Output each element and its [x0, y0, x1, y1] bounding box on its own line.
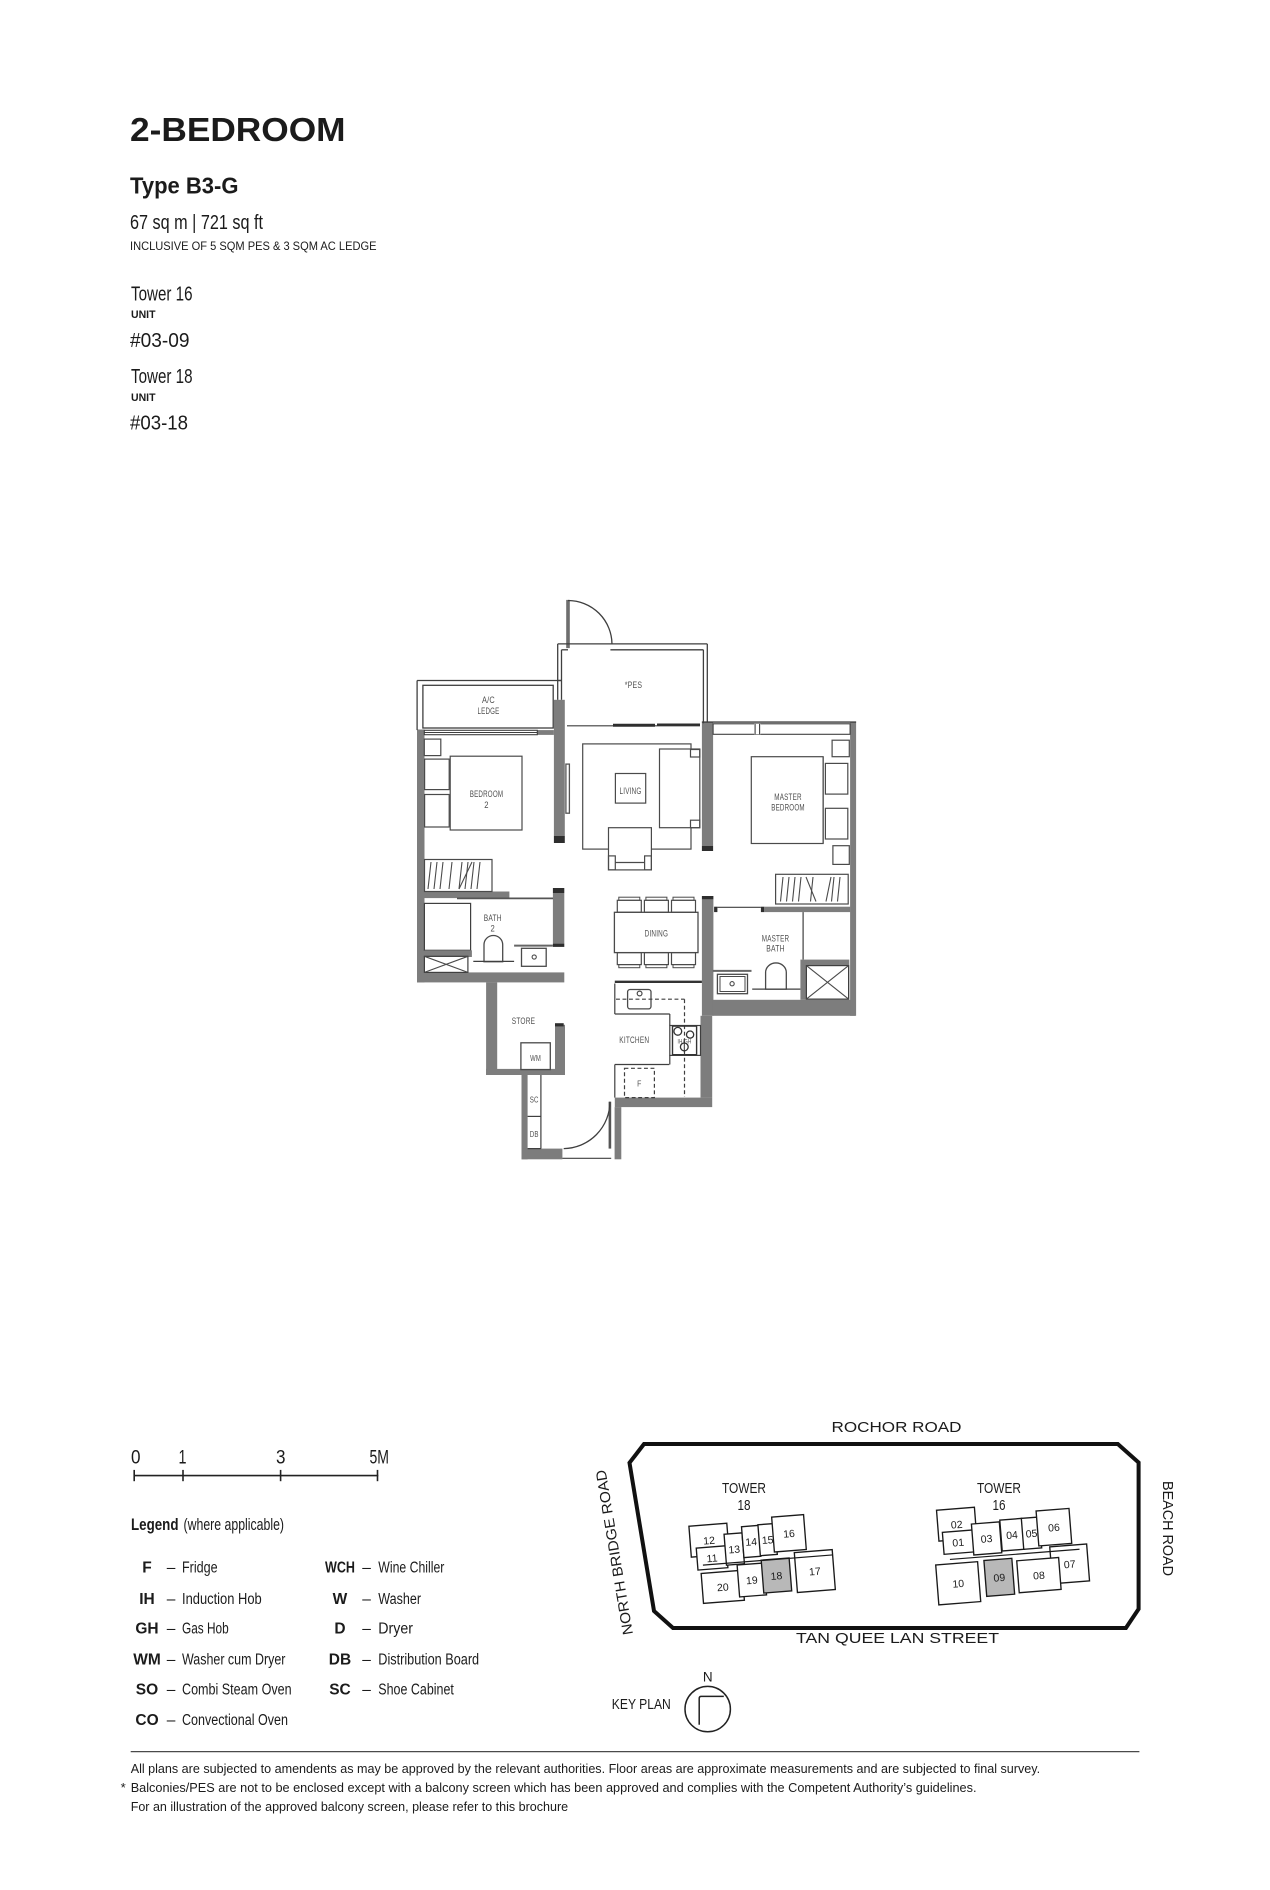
svg-text:BEDROOM: BEDROOM	[771, 803, 805, 814]
svg-text:04: 04	[1006, 1529, 1019, 1542]
svg-text:GH: GH	[135, 1621, 158, 1638]
svg-text:SC: SC	[329, 1682, 351, 1699]
svg-text:67 sq m | 721 sq ft: 67 sq m | 721 sq ft	[130, 212, 263, 234]
svg-text:–: –	[362, 1591, 371, 1608]
svg-text:WM: WM	[133, 1651, 161, 1668]
svg-text:Fridge: Fridge	[182, 1559, 218, 1576]
svg-text:5M: 5M	[370, 1447, 390, 1469]
svg-text:17: 17	[809, 1566, 822, 1579]
svg-text:BATH: BATH	[484, 913, 502, 924]
svg-text:12: 12	[703, 1535, 716, 1548]
svg-text:TOWER: TOWER	[722, 1481, 766, 1497]
svg-text:11: 11	[706, 1552, 718, 1565]
svg-text:UNIT: UNIT	[131, 309, 156, 321]
svg-text:Distribution Board: Distribution Board	[378, 1651, 479, 1668]
svg-text:13: 13	[728, 1544, 741, 1557]
svg-text:Legend: Legend	[131, 1515, 179, 1534]
svg-text:For an illustration of the app: For an illustration of the approved balc…	[131, 1799, 568, 1814]
svg-text:18: 18	[738, 1498, 751, 1514]
svg-text:–: –	[362, 1621, 371, 1638]
svg-text:Wine Chiller: Wine Chiller	[378, 1559, 444, 1576]
svg-text:01: 01	[952, 1537, 965, 1550]
svg-text:16: 16	[993, 1498, 1006, 1514]
svg-text:1: 1	[179, 1447, 187, 1469]
svg-text:15: 15	[761, 1534, 774, 1547]
svg-text:02: 02	[950, 1519, 963, 1532]
svg-text:06: 06	[1048, 1522, 1061, 1535]
svg-text:MASTER: MASTER	[774, 792, 802, 803]
svg-text:SC: SC	[530, 1096, 539, 1105]
svg-text:UNIT: UNIT	[131, 392, 156, 404]
svg-text:Shoe Cabinet: Shoe Cabinet	[378, 1682, 454, 1699]
svg-text:Gas Hob: Gas Hob	[182, 1621, 229, 1638]
svg-text:14: 14	[745, 1536, 758, 1549]
svg-text:F: F	[637, 1080, 642, 1089]
svg-text:09: 09	[993, 1572, 1006, 1585]
svg-text:2-BEDROOM: 2-BEDROOM	[130, 112, 346, 149]
svg-text:16: 16	[783, 1528, 796, 1541]
svg-text:IH: IH	[139, 1591, 155, 1608]
svg-text:WCH: WCH	[325, 1559, 355, 1576]
svg-text:N: N	[703, 1669, 713, 1684]
svg-text:–: –	[362, 1559, 371, 1576]
svg-text:Combi Steam Oven: Combi Steam Oven	[182, 1682, 292, 1699]
svg-text:DINING: DINING	[645, 929, 669, 940]
svg-text:LIVING: LIVING	[620, 786, 642, 797]
svg-text:03: 03	[980, 1533, 993, 1546]
svg-text:BATH: BATH	[766, 944, 785, 955]
svg-text:LEDGE: LEDGE	[478, 706, 500, 717]
svg-text:–: –	[362, 1651, 371, 1668]
svg-text:TOWER: TOWER	[977, 1481, 1021, 1497]
svg-text:A/C: A/C	[482, 695, 495, 706]
svg-text:#03-09: #03-09	[130, 329, 190, 352]
svg-text:DB: DB	[329, 1651, 351, 1668]
svg-text:Balconies/PES are not to be en: Balconies/PES are not to be enclosed exc…	[131, 1780, 977, 1795]
svg-text:All plans are subjected to ame: All plans are subjected to amendents as …	[131, 1761, 1040, 1776]
svg-text:DB: DB	[530, 1130, 539, 1139]
svg-text:10: 10	[952, 1578, 965, 1591]
svg-text:SO: SO	[136, 1682, 158, 1699]
svg-text:–: –	[167, 1651, 176, 1668]
svg-text:BEDROOM: BEDROOM	[470, 789, 504, 800]
svg-text:–: –	[167, 1591, 176, 1608]
svg-text:F: F	[142, 1559, 151, 1576]
svg-text:Induction Hob: Induction Hob	[182, 1591, 262, 1608]
svg-text:Type B3-G: Type B3-G	[130, 173, 239, 199]
svg-text:Washer cum Dryer: Washer cum Dryer	[182, 1651, 285, 1668]
svg-text:–: –	[167, 1559, 176, 1576]
svg-text:WM: WM	[530, 1054, 541, 1063]
svg-text:W: W	[333, 1591, 348, 1608]
svg-text:TAN QUEE LAN STREET: TAN QUEE LAN STREET	[796, 1631, 999, 1647]
svg-text:–: –	[167, 1712, 176, 1729]
svg-text:20: 20	[717, 1581, 730, 1594]
svg-text:BEACH ROAD: BEACH ROAD	[1159, 1481, 1175, 1576]
svg-text:STORE: STORE	[512, 1016, 536, 1027]
svg-text:07: 07	[1063, 1558, 1076, 1571]
svg-text:D: D	[334, 1621, 345, 1638]
svg-text:INCLUSIVE OF 5 SQM PES & 3 SQM: INCLUSIVE OF 5 SQM PES & 3 SQM AC LEDGE	[130, 239, 377, 253]
svg-text:19: 19	[746, 1574, 759, 1587]
svg-text:08: 08	[1033, 1570, 1046, 1583]
svg-text:*: *	[121, 1780, 126, 1795]
svg-text:KITCHEN: KITCHEN	[619, 1035, 649, 1046]
svg-text:3: 3	[276, 1447, 286, 1469]
svg-text:KEY PLAN: KEY PLAN	[612, 1696, 671, 1713]
svg-text:Tower 16: Tower 16	[131, 284, 193, 306]
svg-text:–: –	[167, 1682, 176, 1699]
svg-text:05: 05	[1025, 1528, 1038, 1541]
svg-text:#03-18: #03-18	[130, 412, 188, 435]
svg-text:18: 18	[770, 1570, 783, 1583]
svg-text:Tower 18: Tower 18	[131, 366, 193, 388]
svg-text:CO: CO	[135, 1712, 158, 1729]
svg-text:–: –	[362, 1682, 371, 1699]
svg-text:Washer: Washer	[378, 1591, 421, 1608]
svg-text:–: –	[167, 1621, 176, 1638]
svg-text:2: 2	[484, 800, 489, 811]
svg-text:Convectional Oven: Convectional Oven	[182, 1712, 288, 1729]
svg-text:(where applicable): (where applicable)	[184, 1515, 285, 1534]
svg-text:*PES: *PES	[625, 680, 643, 691]
svg-text:ROCHOR ROAD: ROCHOR ROAD	[832, 1420, 962, 1436]
svg-text:0: 0	[131, 1447, 141, 1469]
svg-text:2: 2	[490, 924, 495, 935]
svg-text:Dryer: Dryer	[378, 1621, 413, 1638]
